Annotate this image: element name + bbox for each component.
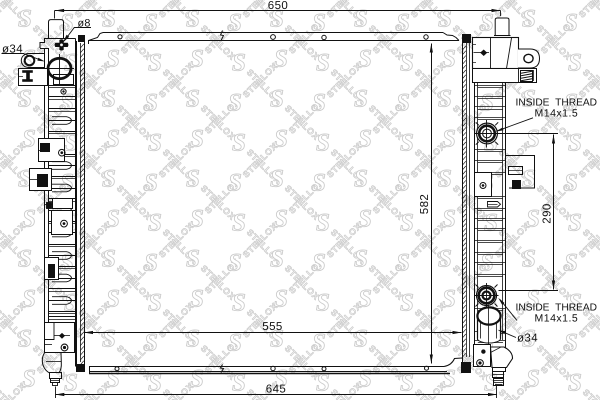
svg-text:ø34: ø34 (517, 333, 538, 345)
svg-text:645: 645 (266, 383, 286, 395)
svg-text:650: 650 (268, 0, 288, 12)
svg-text:290: 290 (541, 203, 553, 223)
svg-text:M14x1.5: M14x1.5 (535, 108, 579, 120)
svg-text:555: 555 (262, 321, 282, 333)
svg-text:M14x1.5: M14x1.5 (535, 313, 579, 325)
svg-text:582: 582 (419, 194, 431, 214)
